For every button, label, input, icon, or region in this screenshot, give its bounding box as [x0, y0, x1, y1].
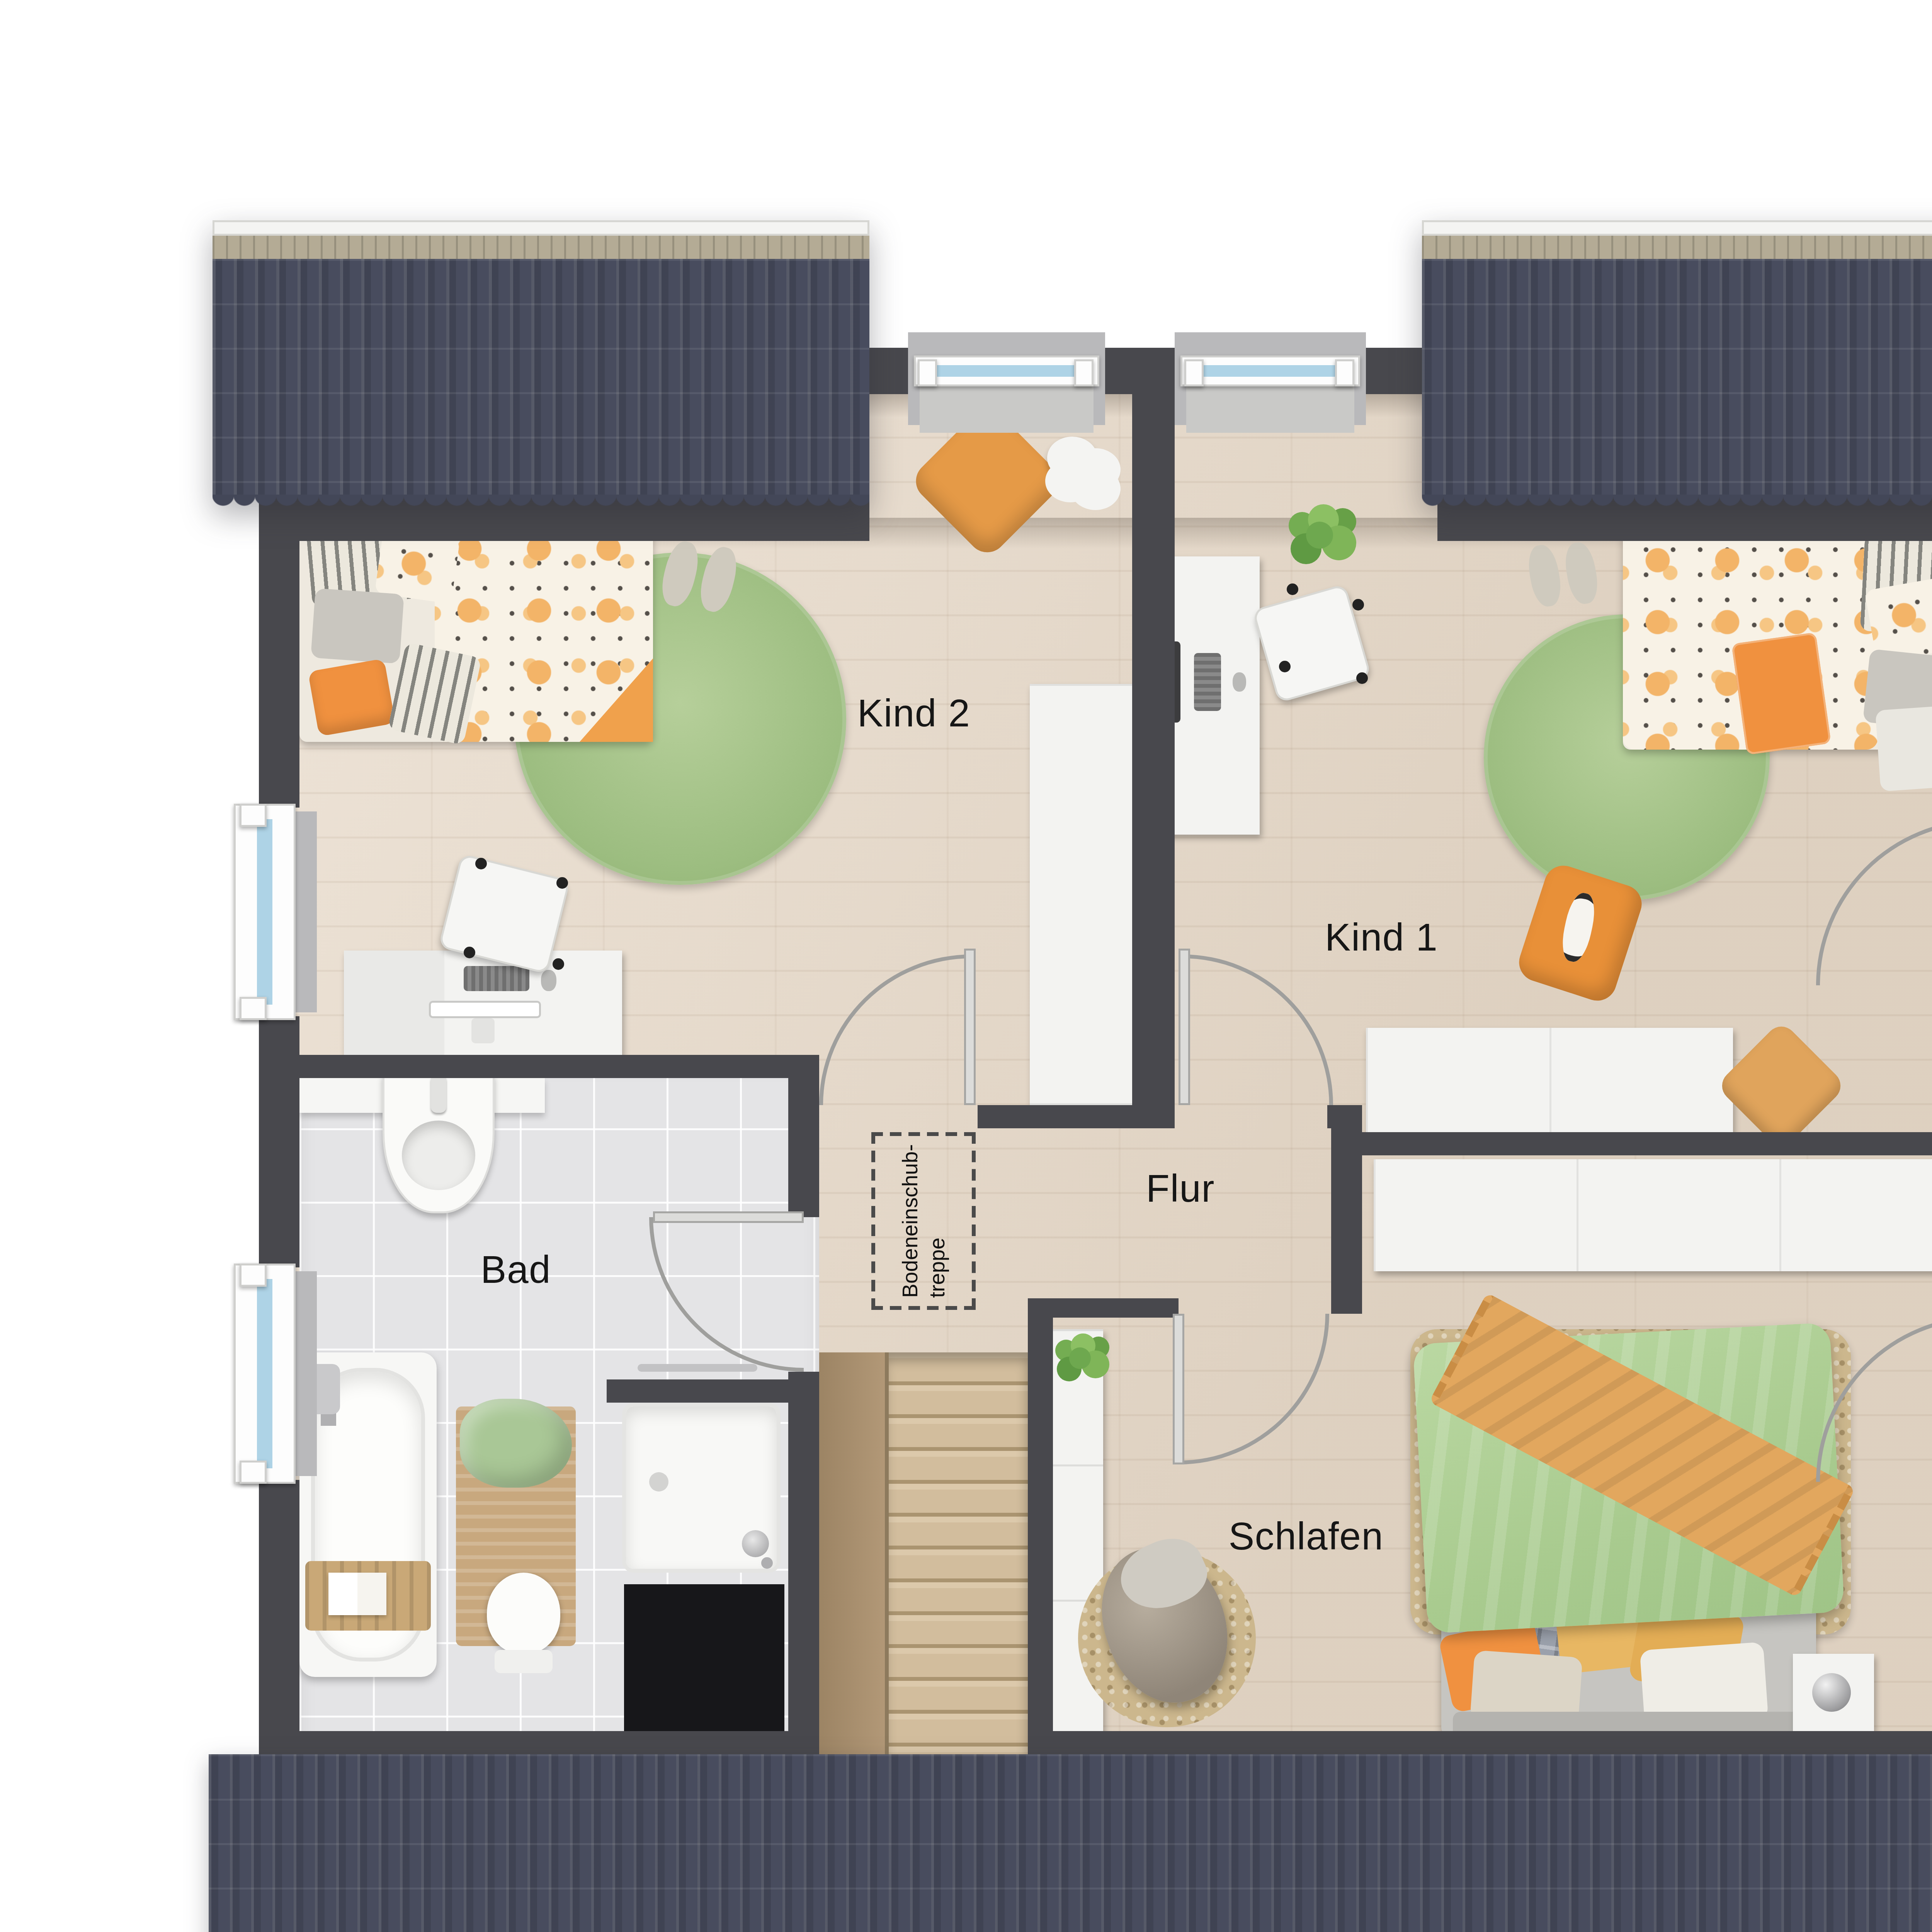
- duvet-fold-kind1: [1731, 632, 1831, 755]
- roof-tiles-top-left: [213, 259, 869, 495]
- mouse-kind2: [541, 970, 556, 991]
- wardrobe-kind2: [1030, 684, 1132, 1105]
- plant-schlafen: [1069, 1347, 1091, 1369]
- room-label-bad: Bad: [481, 1250, 551, 1289]
- window-handle-kind2-a: [240, 804, 267, 827]
- sink-basin: [402, 1121, 475, 1190]
- monitor-stand-kind2: [471, 1018, 495, 1043]
- wall-schlafen-left: [1028, 1298, 1053, 1766]
- floor-plan: Bodeneinschub- treppe Kind 2 Kind 1 Bad …: [0, 0, 1932, 1932]
- pillow-kind1-4: [1875, 704, 1932, 792]
- dormer-glass-1: [929, 365, 1084, 377]
- wall-shower-stub: [607, 1379, 819, 1403]
- attic-void: [624, 1584, 784, 1731]
- window-sill-bad: [294, 1271, 317, 1476]
- roof-eave-band-top-right: [1422, 236, 1932, 259]
- roof-eave-band-top-left: [213, 236, 869, 259]
- room-label-flur: Flur: [1146, 1169, 1215, 1207]
- sink-faucet: [431, 1074, 446, 1113]
- plant-kind1: [1306, 522, 1333, 549]
- wall-flur-schlafen-vert: [1331, 1105, 1362, 1314]
- door-leaf-kind1: [1179, 949, 1190, 1105]
- window-handle-kind2-b: [240, 997, 267, 1020]
- dormer-handle-1b: [1074, 359, 1094, 386]
- stair-landing: [819, 1352, 885, 1762]
- wall-left-b: [259, 1016, 299, 1267]
- pillow-kind1-2: [1864, 577, 1932, 663]
- roof-tiles-top-right: [1422, 259, 1932, 495]
- sideboard-kind1: [1366, 1028, 1733, 1132]
- floor-plan-canvas: Bodeneinschub- treppe Kind 2 Kind 1 Bad …: [0, 0, 1932, 1932]
- mouse-kind1: [1233, 672, 1246, 692]
- shower-handset: [742, 1530, 769, 1557]
- shower-drain: [649, 1472, 668, 1492]
- chair-legs-kind2: [475, 858, 487, 869]
- wall-bad-right-a: [788, 1055, 819, 1217]
- room-label-schlafen: Schlafen: [1228, 1517, 1383, 1555]
- toilet-bowl: [487, 1573, 560, 1654]
- door-leaf-bad: [653, 1211, 804, 1223]
- wall-bad-right-b: [788, 1372, 819, 1766]
- dormer-glass-2: [1196, 365, 1345, 377]
- dormer-apron-2: [1186, 383, 1354, 433]
- door-leaf-schlafen: [1173, 1314, 1184, 1464]
- roof-ridge-top-left: [213, 220, 869, 236]
- wall-center: [1132, 348, 1175, 1128]
- wall-left-c: [259, 1480, 299, 1766]
- keyboard-kind2: [464, 966, 529, 991]
- window-handle-bad-b: [240, 1461, 267, 1484]
- dormer-apron-1: [920, 383, 1094, 433]
- roof-ridge-top-right: [1422, 220, 1932, 236]
- window-glass-kind2: [257, 819, 272, 1005]
- dormer-handle-2b: [1335, 359, 1354, 386]
- wall-bad-top: [259, 1055, 819, 1078]
- cloud-table: [1047, 437, 1097, 479]
- attic-hatch-label: Bodeneinschub- treppe: [896, 1144, 951, 1298]
- room-label-kind2: Kind 2: [857, 694, 971, 732]
- roof-top-right: [1422, 220, 1932, 518]
- window-glass-bad: [257, 1279, 272, 1468]
- wall-schlafen-stub: [1028, 1298, 1179, 1318]
- staircase: [885, 1352, 1028, 1762]
- attic-hatch-label-line2: treppe: [923, 1144, 951, 1298]
- window-sill-kind2: [294, 811, 317, 1012]
- wardrobe-schlafen: [1374, 1159, 1932, 1271]
- lamp-schlafen: [1812, 1673, 1851, 1712]
- dormer-handle-2a: [1184, 359, 1204, 386]
- roof-scallop-top-left: [213, 495, 869, 518]
- chair-legs-kind1: [1287, 583, 1298, 595]
- dormer-handle-1a: [918, 359, 937, 386]
- roof-top-left: [213, 220, 869, 518]
- room-label-kind1: Kind 1: [1325, 918, 1438, 956]
- door-leaf-kind2: [964, 949, 976, 1105]
- attic-hatch-label-line1: Bodeneinschub-: [896, 1144, 923, 1298]
- pillow-kind2-3: [311, 588, 404, 664]
- towel-rail: [638, 1364, 757, 1372]
- toilet-tank: [495, 1650, 553, 1673]
- window-handle-bad-a: [240, 1264, 267, 1287]
- monitor-kind2: [429, 1001, 541, 1018]
- roof-bottom: [209, 1754, 1932, 1932]
- caddy-book: [328, 1573, 386, 1615]
- roof-tiles-bottom: [209, 1754, 1932, 1932]
- roof-scallop-top-right: [1422, 495, 1932, 518]
- wall-kind1-schlafen: [1331, 1132, 1932, 1155]
- pillow-kind2-orange: [308, 658, 395, 736]
- wall-flur-top-mid: [978, 1105, 1175, 1128]
- keyboard-kind1: [1194, 653, 1221, 711]
